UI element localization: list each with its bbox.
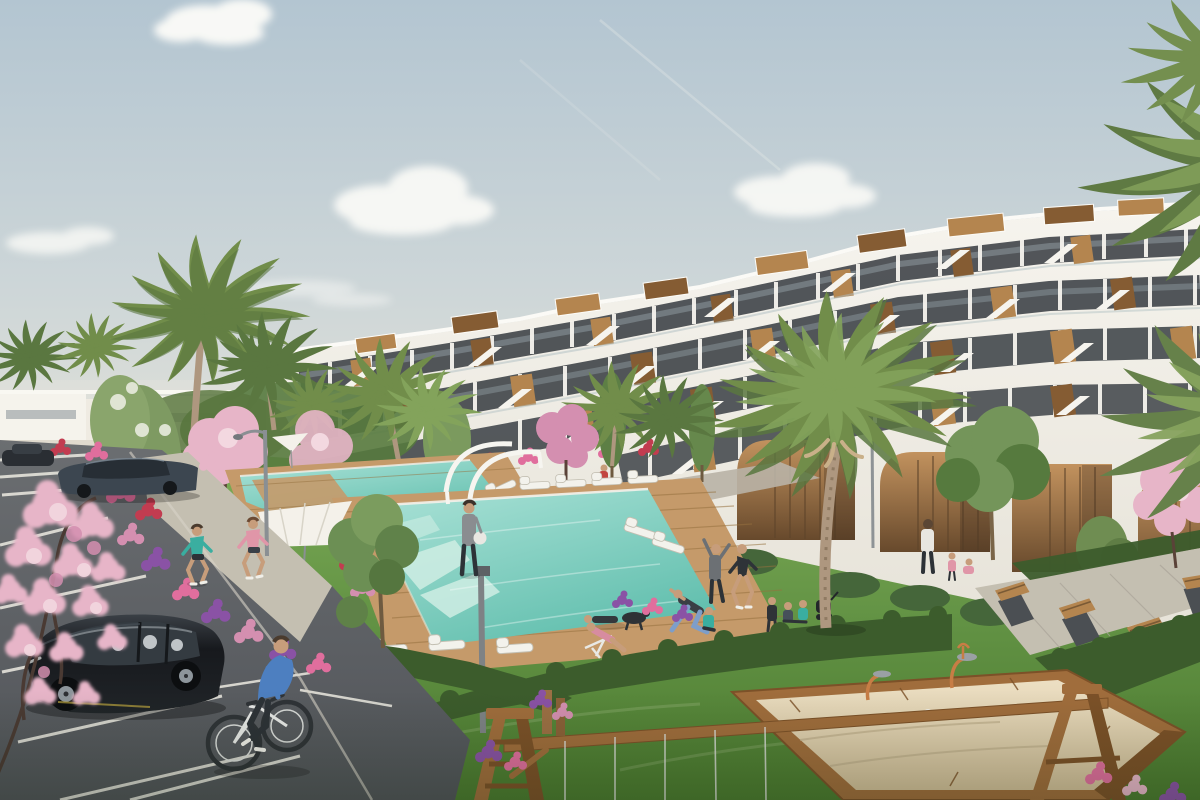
architectural-rendering: Sunny 3D architectural rendering of a wh… [0, 0, 1200, 800]
person-lying [584, 615, 618, 623]
car-sedan [56, 459, 200, 503]
foreground-vignette [0, 690, 1200, 800]
render-canvas: . [0, 0, 1200, 800]
